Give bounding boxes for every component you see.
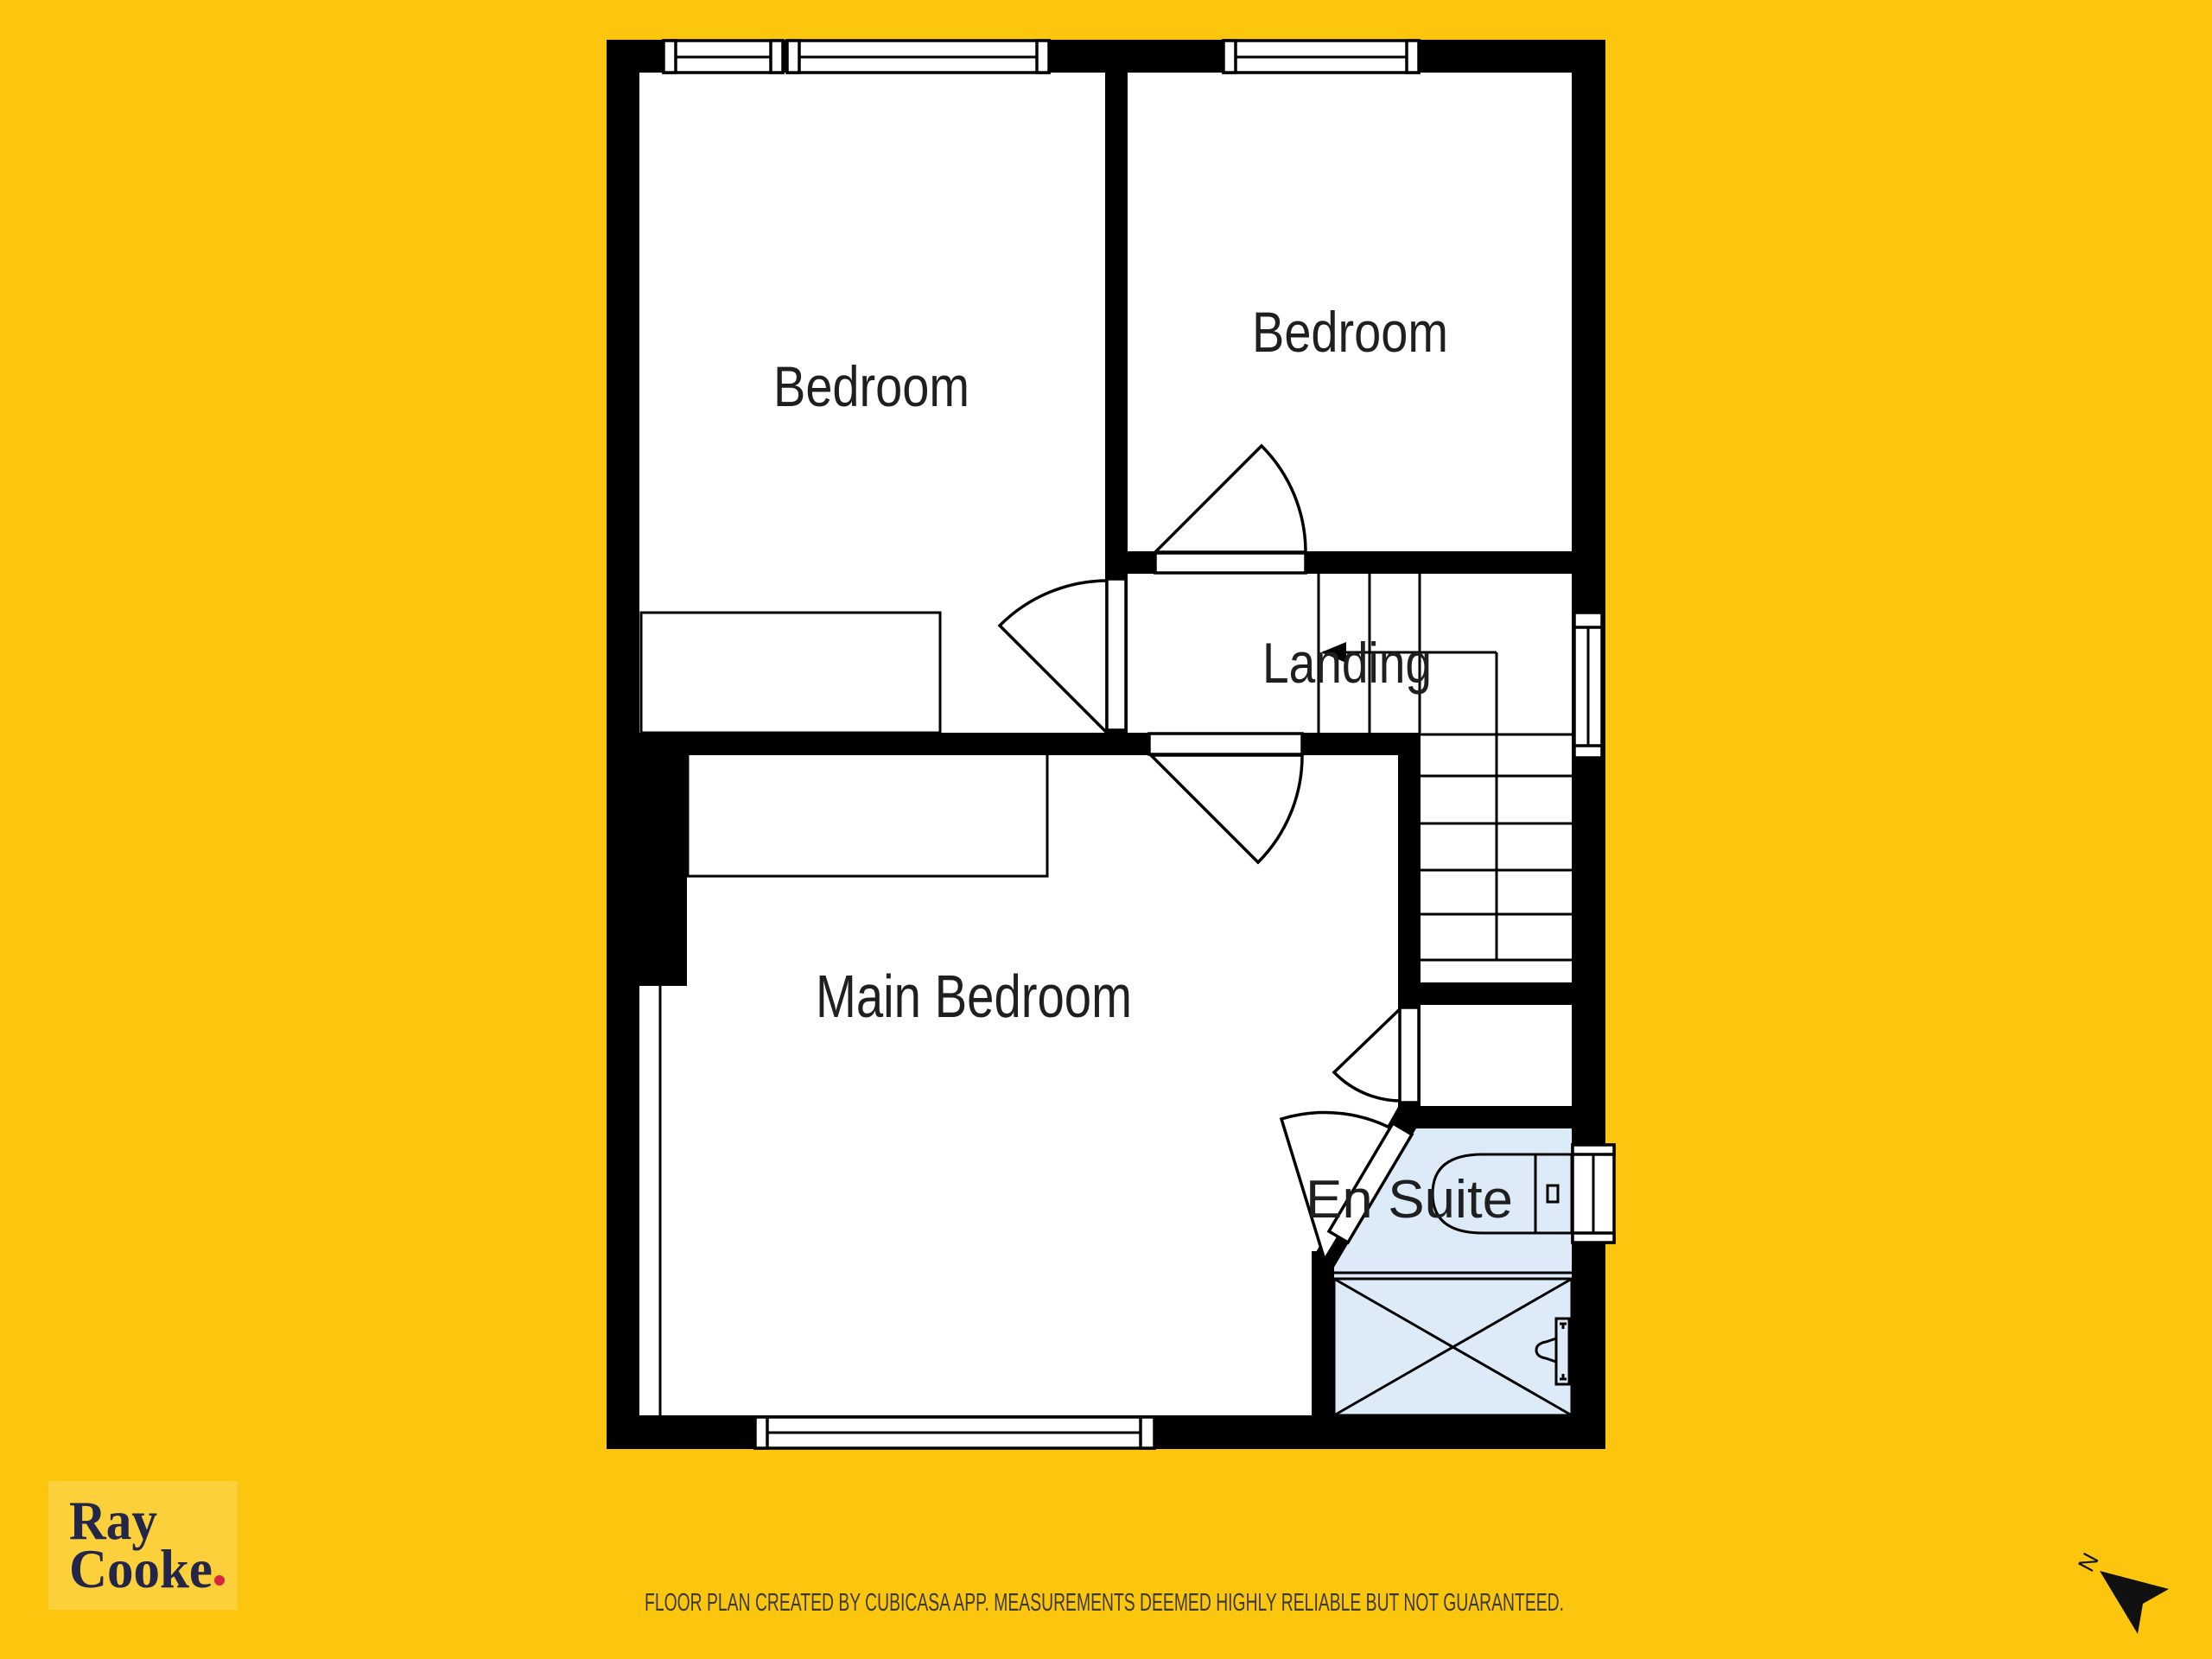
svg-text:FLOOR PLAN CREATED BY CUBICASA: FLOOR PLAN CREATED BY CUBICASA APP. MEAS… xyxy=(645,1589,1564,1617)
svg-text:Bedroom: Bedroom xyxy=(773,354,969,418)
svg-text:Bedroom: Bedroom xyxy=(1252,300,1448,364)
svg-text:Main Bedroom: Main Bedroom xyxy=(816,963,1132,1030)
svg-text:Landing: Landing xyxy=(1262,631,1432,695)
svg-text:Cooke: Cooke xyxy=(69,1538,213,1599)
svg-text:En Suite: En Suite xyxy=(1306,1170,1513,1230)
